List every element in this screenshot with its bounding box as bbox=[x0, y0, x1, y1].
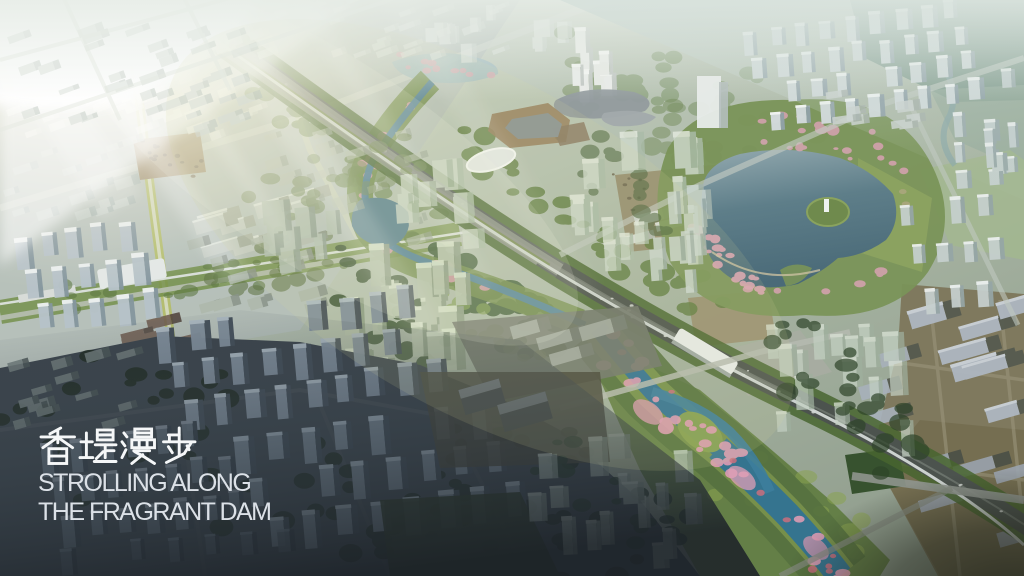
svg-text:STROLLING ALONG: STROLLING ALONG bbox=[38, 469, 250, 497]
svg-text:THE FRAGRANT DAM: THE FRAGRANT DAM bbox=[38, 498, 271, 526]
